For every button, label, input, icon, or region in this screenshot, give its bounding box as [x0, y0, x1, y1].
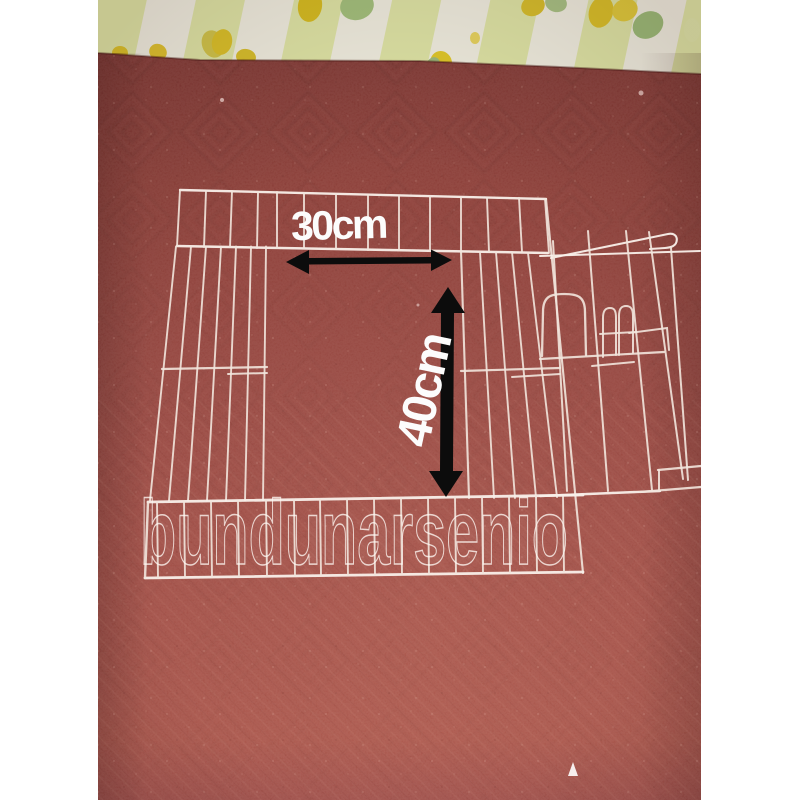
svg-text:30cm: 30cm	[290, 201, 386, 249]
svg-text:bundunarsenio: bundunarsenio	[140, 482, 568, 584]
